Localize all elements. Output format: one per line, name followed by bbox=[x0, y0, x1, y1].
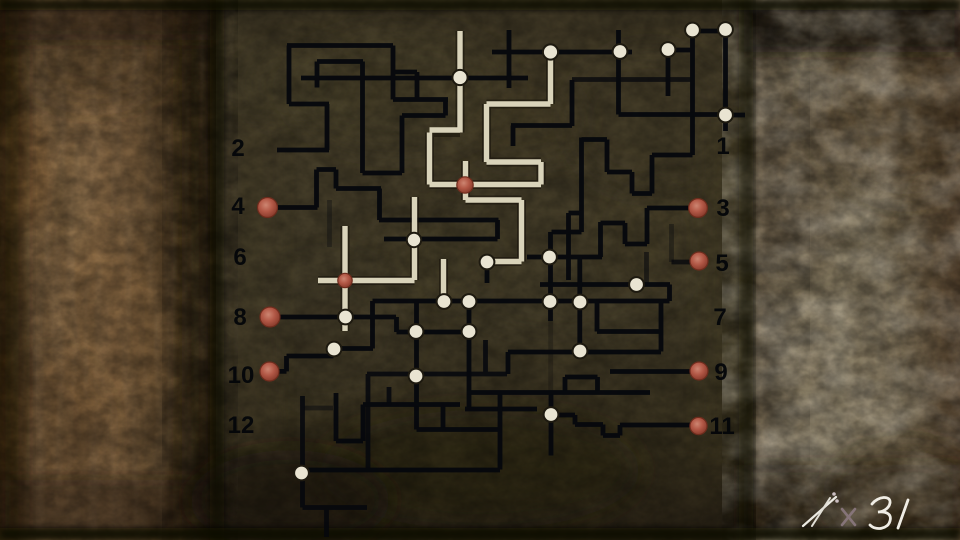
svg-text:6: 6 bbox=[233, 244, 246, 271]
svg-text:2: 2 bbox=[231, 135, 244, 162]
svg-text:8: 8 bbox=[233, 304, 246, 331]
svg-text:7: 7 bbox=[713, 304, 726, 331]
svg-text:9: 9 bbox=[714, 359, 727, 386]
svg-text:5: 5 bbox=[715, 250, 728, 277]
svg-text:4: 4 bbox=[231, 193, 245, 220]
svg-text:12: 12 bbox=[228, 412, 255, 439]
svg-text:1: 1 bbox=[716, 133, 729, 160]
svg-text:10: 10 bbox=[228, 362, 255, 389]
svg-text:11: 11 bbox=[709, 413, 734, 440]
svg-text:3: 3 bbox=[716, 195, 729, 222]
